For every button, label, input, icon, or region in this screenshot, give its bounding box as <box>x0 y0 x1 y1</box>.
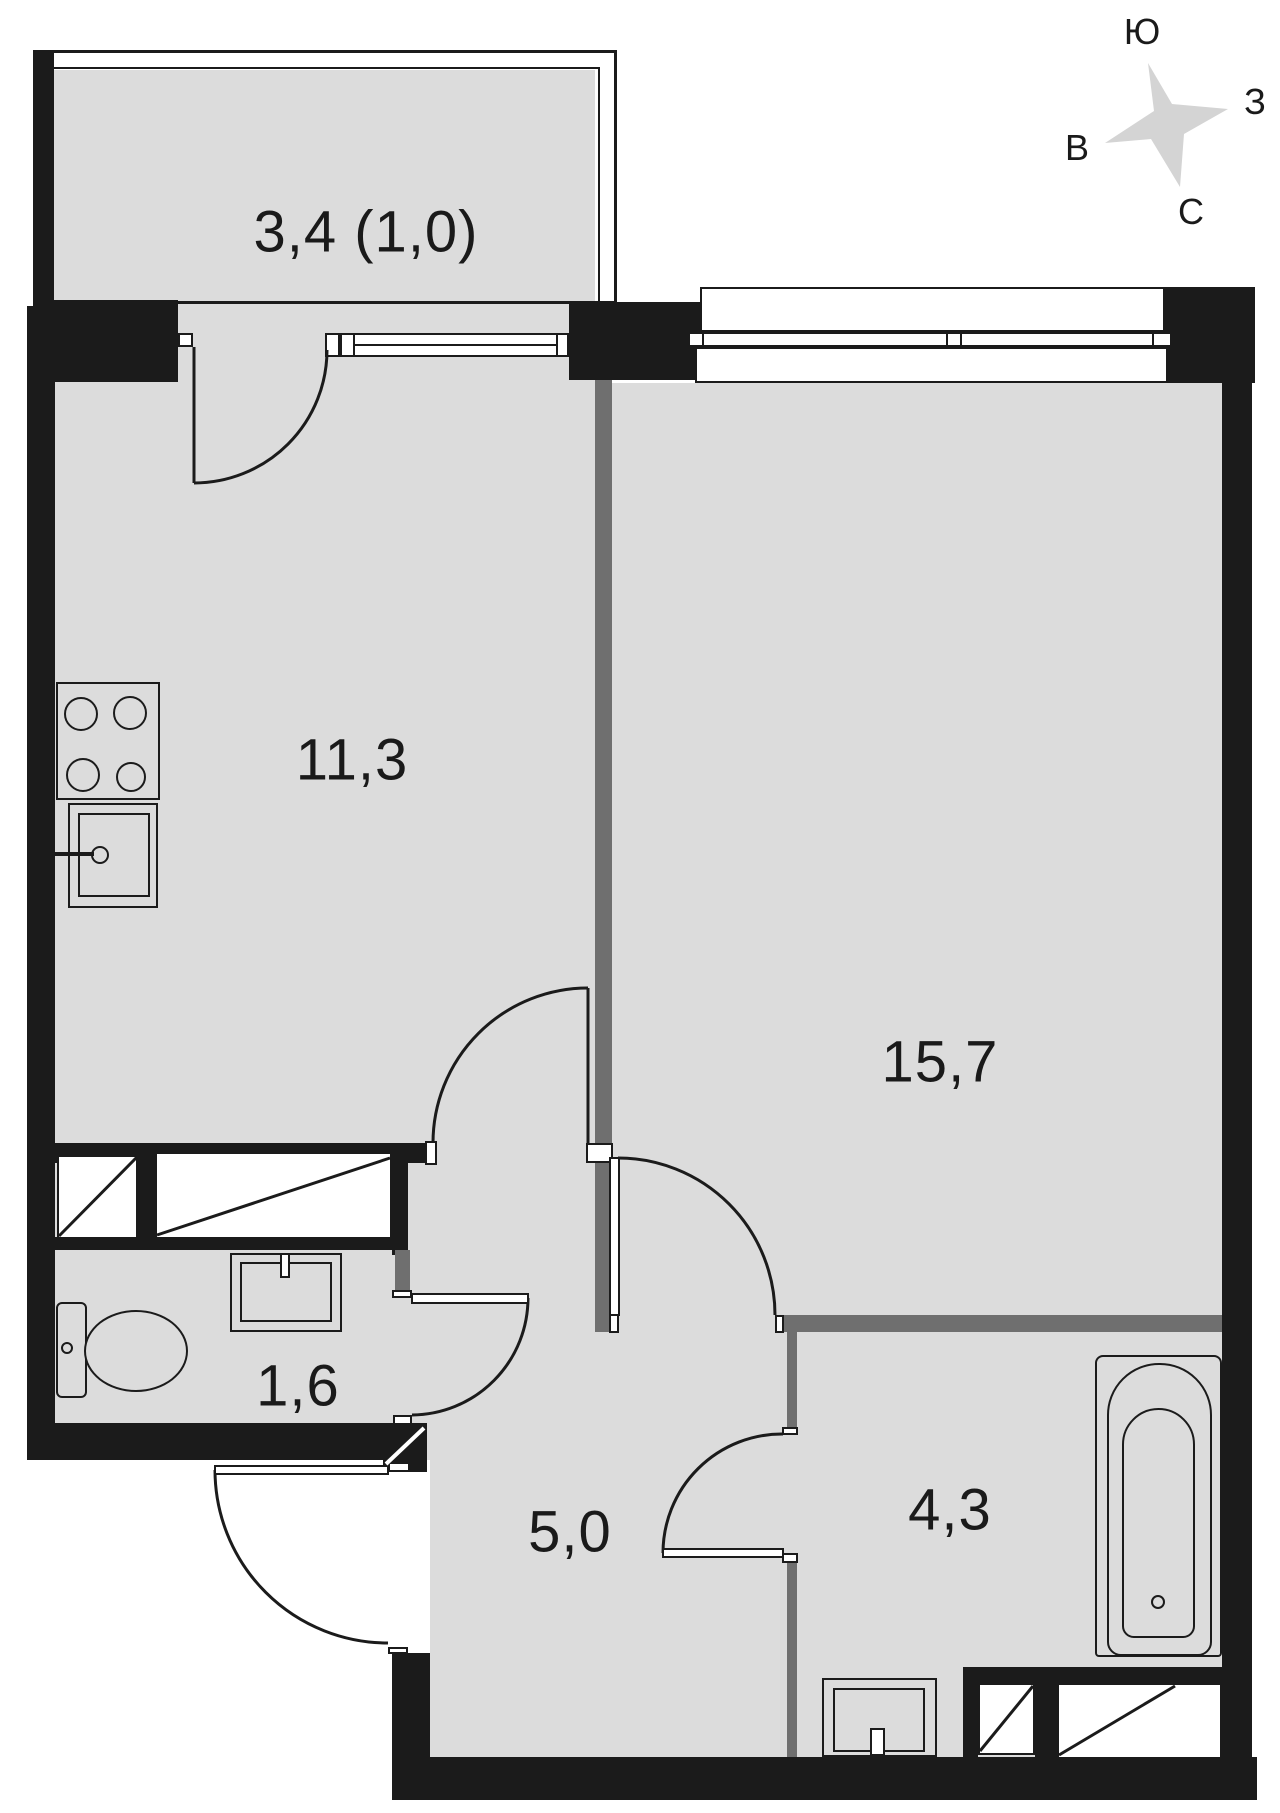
partition-kitchen-living-upper <box>595 380 612 1143</box>
kitchen-sink-faucet-icon <box>50 852 94 856</box>
closet-right <box>155 1152 392 1239</box>
living-window-outer-sill <box>700 287 1165 332</box>
vent-duct-right <box>1057 1683 1222 1759</box>
wall-toilet-bottom <box>27 1423 383 1460</box>
stove-burner-icon <box>116 762 146 792</box>
bath-door-jamb-bottom <box>782 1553 798 1563</box>
kitchen-door-jamb-right <box>586 1143 613 1163</box>
living-window-cap-left <box>702 332 704 347</box>
compass-label-bottom: С <box>1178 191 1204 233</box>
partition-hall-bath-upper <box>787 1332 797 1427</box>
balcony-door-jamb-left <box>178 333 193 347</box>
wall-bottom <box>392 1757 1257 1800</box>
closet-left <box>57 1155 138 1239</box>
living-window-cap-right <box>1152 332 1154 347</box>
room-label-living: 15,7 <box>882 1029 999 1096</box>
room-label-bathroom: 4,3 <box>908 1477 992 1544</box>
bathtub-drain <box>1151 1595 1165 1609</box>
living-window-mullion-b <box>960 332 962 347</box>
living-door-jamb-top <box>609 1313 619 1333</box>
room-hallway <box>392 1143 787 1757</box>
vent-duct-left <box>978 1683 1035 1755</box>
compass-star-icon <box>1105 63 1228 187</box>
bathroom-sink-faucet-icon <box>870 1728 885 1756</box>
stove-burner-icon <box>64 697 98 731</box>
wall-duct-divider <box>1035 1683 1057 1757</box>
room-label-kitchen: 11,3 <box>296 727 409 794</box>
wall-duct-left <box>963 1667 978 1757</box>
partition-living-bath <box>783 1315 1222 1332</box>
wall-closet-right <box>392 1143 408 1255</box>
partition-kitchen-living-lower <box>595 1163 612 1332</box>
outside-entrance-area <box>27 1460 430 1813</box>
compass-label-top: Ю <box>1124 11 1160 53</box>
floor-plan: 3,4 (1,0) 11,3 15,7 1,6 5,0 4,3 Ю З В С <box>0 0 1280 1813</box>
stove-burner-icon <box>66 758 100 792</box>
wall-closet-divider <box>138 1152 155 1237</box>
partition-hall-bath-lower <box>787 1563 797 1757</box>
wall-kitchen-top-left <box>52 300 178 382</box>
compass-label-right: З <box>1244 81 1266 123</box>
room-label-toilet: 1,6 <box>256 1353 340 1420</box>
wall-balcony-left <box>33 50 54 306</box>
toilet-door-jamb-top <box>392 1290 412 1298</box>
entrance-jamb-top <box>388 1462 410 1472</box>
room-label-balcony: 3,4 (1,0) <box>254 199 479 266</box>
wall-duct-top <box>963 1667 1222 1683</box>
living-window-inner-sill <box>695 347 1168 383</box>
stove-burner-icon <box>113 696 147 730</box>
bath-door-jamb-top <box>782 1427 798 1435</box>
kitchen-window-divider-right <box>556 333 558 357</box>
wall-right-main <box>1222 287 1252 1800</box>
living-door-jamb-right <box>775 1315 784 1333</box>
kitchen-window-midline <box>355 344 556 346</box>
compass-label-left: В <box>1065 127 1089 169</box>
entrance-jamb-bottom <box>388 1647 408 1654</box>
toilet-bowl <box>84 1310 188 1392</box>
kitchen-door-jamb-left <box>425 1141 437 1165</box>
room-label-hallway: 5,0 <box>528 1499 612 1566</box>
living-window-mullion-a <box>946 332 948 347</box>
living-window-bar <box>688 332 1172 347</box>
toilet-flush-button <box>61 1342 73 1354</box>
wall-left-main <box>27 306 55 1460</box>
balcony-door-jamb-right <box>325 333 340 357</box>
toilet-sink-faucet-icon <box>280 1253 290 1278</box>
partition-toilet-stub <box>395 1250 410 1290</box>
toilet-door-jamb-bottom <box>393 1415 412 1425</box>
balcony-glazing-inner <box>52 67 600 304</box>
